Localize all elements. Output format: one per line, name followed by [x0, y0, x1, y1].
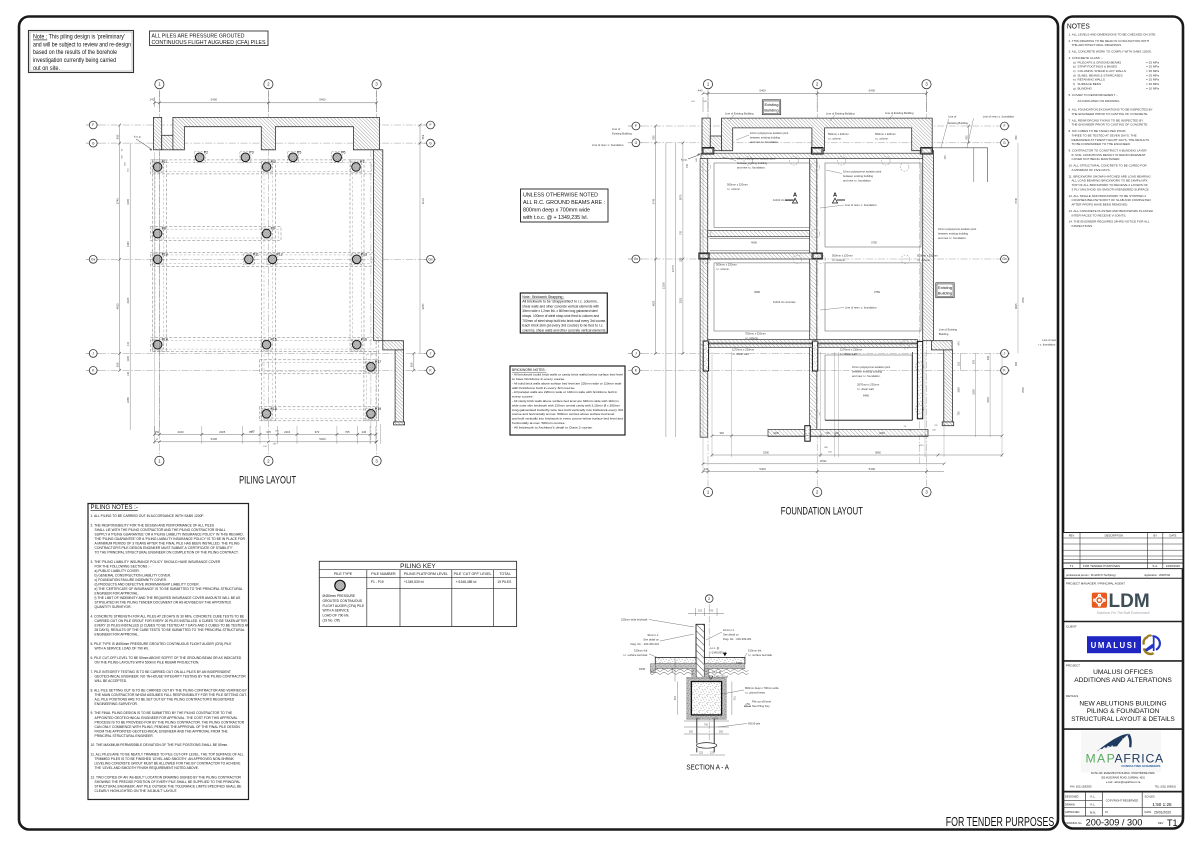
svg-text:500mm x 220mm: 500mm x 220mm	[828, 132, 850, 136]
svg-text:F: F	[635, 124, 637, 128]
svg-text:shear walls and other concrete: shear walls and other concrete vertical …	[522, 304, 599, 308]
svg-text:6. PILE CUT-OFF LEVEL TO BE 50: 6. PILE CUT-OFF LEVEL TO BE 50mm ABOVE S…	[91, 656, 242, 660]
svg-text:J: J	[430, 352, 432, 356]
svg-text:SUITE 108, ESSENHIGH BUILDING,: SUITE 108, ESSENHIGH BUILDING, STRATHMOR…	[1091, 772, 1156, 775]
svg-text:and will be subject to review: and will be subject to review and re-des…	[33, 41, 131, 48]
svg-text:2590: 2590	[972, 389, 975, 395]
svg-text:1170mm x 220mm: 1170mm x 220mm	[732, 348, 755, 352]
svg-text:24/06/2020: 24/06/2020	[1166, 564, 1180, 568]
svg-text:DPM: DPM	[639, 667, 646, 671]
svg-text:800mm deep x 700mm wide: 800mm deep x 700mm wide	[745, 686, 779, 690]
svg-text:and new r.c. foundation.: and new r.c. foundation.	[852, 374, 881, 378]
svg-text:FLIGHT AUGER (CFA) PILE: FLIGHT AUGER (CFA) PILE	[323, 604, 366, 608]
svg-text:3. ALL CONCRETE WORK TO COMPLY: 3. ALL CONCRETE WORK TO COMPLY WITH SABS…	[1069, 50, 1153, 54]
svg-text:r.c. column.: r.c. column.	[828, 137, 842, 141]
svg-text:2530: 2530	[987, 397, 990, 403]
svg-text:G: G	[92, 141, 95, 145]
svg-text:1105: 1105	[126, 355, 130, 361]
svg-text:TEL: (031) 3090631: TEL: (031) 3090631	[1155, 786, 1177, 789]
svg-text:BY: BY	[1153, 533, 1157, 537]
svg-text:LEVELING CONCRETE GROUT MUST B: LEVELING CONCRETE GROUT MUST BE ALLOWED …	[95, 762, 242, 766]
svg-text:GROUTED CONTINUOUS: GROUTED CONTINUOUS	[323, 599, 363, 603]
svg-text:between existing building: between existing building	[938, 232, 969, 236]
svg-text:225mm wide brickwall.: 225mm wide brickwall.	[621, 618, 648, 622]
svg-text:DESCRIPTION: DESCRIPTION	[1105, 533, 1123, 537]
svg-text:130: 130	[709, 609, 714, 613]
svg-text:30mm wide x 1,2mm thk. x 800mm: 30mm wide x 1,2mm thk. x 800mm long galv…	[522, 309, 598, 313]
svg-text:course and horizontally at max: course and horizontally at max. 500mm ce…	[512, 412, 615, 416]
svg-text:975: 975	[266, 430, 271, 434]
svg-text:830: 830	[115, 362, 119, 367]
svg-text:SHOWING THE PRECISE POSITION O: SHOWING THE PRECISE POSITION OF EVERY PI…	[95, 780, 241, 784]
svg-text:- All brickwork (solid brick w: - All brickwork (solid brick walls or ca…	[512, 373, 623, 377]
svg-text:700: 700	[680, 230, 683, 235]
svg-text:10770: 10770	[672, 264, 675, 272]
svg-text:P15: P15	[271, 338, 277, 342]
svg-text:FOR TENDER PURPOSES: FOR TENDER PURPOSES	[1083, 564, 1120, 568]
svg-text:investigation currently being: investigation currently being carried	[33, 57, 116, 64]
svg-text:FOR THE FOLLOWING SECTIONS :-: FOR THE FOLLOWING SECTIONS :-	[95, 564, 151, 568]
svg-text:AFTER PROPS HAVE BEEN REMOVED.: AFTER PROPS HAVE BEEN REMOVED.	[1072, 203, 1129, 207]
svg-text:2025: 2025	[219, 430, 225, 434]
svg-text:INSPECTIONS.: INSPECTIONS.	[1072, 224, 1094, 228]
svg-text:10mm polystyrene isolation joi: 10mm polystyrene isolation joint	[852, 365, 890, 369]
svg-text:P5: P5	[297, 150, 301, 154]
svg-text:P8: P8	[162, 227, 166, 231]
svg-text:LDM: LDM	[1109, 591, 1150, 612]
svg-text:1880: 1880	[957, 387, 960, 393]
svg-text:Line of: Line of	[612, 127, 620, 131]
svg-text:1. ALL LEVELS AND DIMENSIONS T: 1. ALL LEVELS AND DIMENSIONS TO BE CHECK…	[1069, 32, 1157, 36]
svg-text:THE ENGINEER PRIOR TO CASTING: THE ENGINEER PRIOR TO CASTING OF CONCRET…	[1072, 112, 1149, 116]
svg-text:750: 750	[733, 696, 737, 701]
svg-text:5400: 5400	[211, 437, 218, 441]
svg-text:DATE: DATE	[1145, 810, 1152, 814]
svg-text:P7: P7	[360, 160, 364, 164]
svg-text:500mm x 220mm: 500mm x 220mm	[727, 183, 749, 187]
svg-text:440: 440	[671, 667, 675, 672]
svg-text:K.L.: K.L.	[1090, 795, 1096, 799]
svg-text:5745: 5745	[421, 198, 425, 204]
svg-text:PILING & FOUNDATION: PILING & FOUNDATION	[1087, 708, 1160, 715]
svg-text:800: 800	[673, 695, 677, 700]
svg-text:r.c. foundation.: r.c. foundation.	[1038, 343, 1056, 347]
svg-text:700: 700	[704, 724, 709, 727]
svg-text:TO BE FORWARDED TO THE ENGINEE: TO BE FORWARDED TO THE ENGINEER.	[1072, 142, 1131, 146]
svg-text:1:50 1:25: 1:50 1:25	[1152, 802, 1172, 807]
svg-text:g): g)	[1073, 86, 1076, 90]
svg-text:5400: 5400	[869, 88, 876, 92]
svg-text:450: 450	[696, 718, 701, 721]
svg-text:700mm of steel strap built int: 700mm of steel strap built into brick wa…	[522, 319, 606, 323]
svg-text:DETAILS: DETAILS	[1066, 694, 1078, 698]
svg-text:f) THE LIMIT OF INDEMNITY AND: f) THE LIMIT OF INDEMNITY AND THE REQUIR…	[95, 596, 242, 600]
svg-text:F: F	[92, 123, 94, 127]
svg-text:5400: 5400	[869, 467, 876, 471]
svg-text:ENGINEER FOR APPROVAL.: ENGINEER FOR APPROVAL.	[95, 633, 139, 637]
svg-text:Line of new: Line of new	[1042, 338, 1056, 342]
svg-text:CONTRACTOR'S PILE DESIGN ENGIN: CONTRACTOR'S PILE DESIGN ENGINEER MUST S…	[95, 546, 234, 550]
svg-text:2670mm x 220mm: 2670mm x 220mm	[857, 383, 880, 387]
svg-text:2265: 2265	[126, 397, 130, 403]
svg-text:Existing: Existing	[764, 102, 778, 107]
svg-text:P6: P6	[341, 150, 345, 154]
svg-text:t.o.c. @: t.o.c. @	[710, 646, 720, 650]
svg-text:- All solid brick walls above: - All solid brick walls above surface be…	[512, 381, 622, 385]
svg-text:P17: P17	[375, 360, 381, 364]
svg-text:700mm x 220mm: 700mm x 220mm	[745, 332, 767, 336]
svg-text:APPOINTED GEOTECHNICAL ENGINEE: APPOINTED GEOTECHNICAL ENGINEER FOR APPR…	[95, 716, 238, 720]
svg-text:150mm thk.: 150mm thk.	[748, 649, 762, 653]
svg-text:4690: 4690	[751, 241, 757, 245]
svg-text:780: 780	[680, 257, 683, 262]
svg-text:Building: Building	[939, 332, 949, 336]
svg-text:Each brick skin (at every 3rd: Each brick skin (at every 3rd course) to…	[522, 324, 603, 328]
svg-text:4625: 4625	[421, 303, 425, 309]
svg-text:registration : 20067011: registration : 20067011	[1144, 573, 1171, 577]
svg-text:960: 960	[720, 431, 725, 435]
svg-text:CONSULTING ENGINEERS: CONSULTING ENGINEERS	[1121, 764, 1160, 768]
svg-text:Pile cut-off level.: Pile cut-off level.	[752, 700, 772, 704]
svg-text:+/1348,485 lvl: +/1348,485 lvl	[456, 580, 477, 584]
svg-text:P9: P9	[271, 227, 275, 231]
svg-text:STRUCTURAL ENGINEER. ANY PILE: STRUCTURAL ENGINEER. ANY PILE OUTSIDE TH…	[95, 785, 243, 789]
svg-text:305 MUSGRAVE ROAD, DURBAN, 400: 305 MUSGRAVE ROAD, DURBAN, 4001	[1101, 777, 1145, 780]
svg-text:G: G	[429, 141, 432, 145]
svg-text:150mm thk.: 150mm thk.	[634, 649, 648, 653]
svg-text:Line of Existing Building: Line of Existing Building	[826, 112, 855, 116]
svg-text:S.A.: S.A.	[1152, 564, 1158, 568]
svg-text:Line of Existing Building: Line of Existing Building	[725, 112, 754, 116]
svg-text:ENGINEER FOR APPROVAL.: ENGINEER FOR APPROVAL.	[95, 592, 139, 596]
svg-text:3. THE 'PILING LIABILITY INSUR: 3. THE 'PILING LIABILITY INSURANCE POLIC…	[91, 560, 221, 564]
svg-text:DRAWING No.: DRAWING No.	[1065, 821, 1082, 825]
svg-text:r.c. shear wall.: r.c. shear wall.	[732, 352, 749, 356]
svg-text:to have brickforce in every co: to have brickforce in every course.	[512, 377, 565, 381]
svg-text:870: 870	[972, 359, 975, 364]
svg-text:830: 830	[652, 135, 655, 140]
svg-text:SHALL LIE WITH THE PILING CONT: SHALL LIE WITH THE PILING CONTRACTOR AND…	[95, 528, 226, 532]
svg-text:BLINDING: BLINDING	[1078, 86, 1093, 90]
svg-text:10mm polystyrene isolation joi: 10mm polystyrene isolation joint	[843, 170, 881, 174]
svg-text:ON THE PILING LAYOUTS WITH 500: ON THE PILING LAYOUTS WITH 500mm PILE RE…	[95, 660, 200, 664]
svg-text:830: 830	[1015, 361, 1018, 366]
svg-text:Solutions For The Built Enviro: Solutions For The Built Environment	[1097, 611, 1151, 615]
svg-text:Note : Brickwork Strapping :: Note : Brickwork Strapping :	[522, 295, 564, 299]
svg-text:DESIGNED: DESIGNED	[1065, 794, 1079, 798]
svg-text:5390: 5390	[763, 450, 769, 454]
svg-text:+1349,235 lvl.: +1349,235 lvl.	[712, 675, 729, 679]
svg-text:P14: P14	[162, 338, 168, 342]
svg-text:225: 225	[710, 752, 715, 755]
svg-text:THE ARCHITECTURAL DRAWINGS.: THE ARCHITECTURAL DRAWINGS.	[1072, 43, 1123, 47]
svg-text:CARRIED OUT ON PILE GROUT FOR: CARRIED OUT ON PILE GROUT FOR EVERY 20 P…	[95, 619, 248, 623]
svg-text:PRINCIPAL STRUCTURAL ENGINEER.: PRINCIPAL STRUCTURAL ENGINEER.	[95, 734, 154, 738]
svg-text:between existing building: between existing building	[843, 174, 874, 178]
svg-text:FOR TENDER PURPOSES: FOR TENDER PURPOSES	[946, 814, 1055, 829]
svg-text:1360: 1360	[126, 241, 130, 247]
svg-text:FAX: (031) 3092929: FAX: (031) 3092929	[1070, 786, 1092, 789]
svg-text:11010 c/s concrete: 11010 c/s concrete	[773, 300, 796, 304]
svg-text:415: 415	[127, 341, 130, 346]
svg-text:A MINIMUM PERIOD OF 3 YEARS AF: A MINIMUM PERIOD OF 3 YEARS AFTER THE FI…	[95, 541, 241, 545]
svg-text:4625: 4625	[652, 300, 655, 306]
svg-text:4025: 4025	[126, 297, 130, 303]
svg-text:between existing building: between existing building	[737, 161, 768, 165]
svg-text:200-309 / 300: 200-309 / 300	[1086, 818, 1143, 828]
svg-text:APPROVED: APPROVED	[1065, 810, 1080, 814]
svg-text:Existing Building: Existing Building	[948, 121, 968, 125]
svg-text:10mm polystyrene isolation joi: 10mm polystyrene isolation joint	[938, 227, 976, 231]
svg-text:UNLESS OTHERWISE NOTED: UNLESS OTHERWISE NOTED	[523, 193, 598, 199]
svg-text:EVERY 10 PILES INSTALLED (3 CU: EVERY 10 PILES INSTALLED (3 CUBES TO BE …	[95, 624, 249, 628]
svg-text:7. PILE INTEGRITY TESTING IS T: 7. PILE INTEGRITY TESTING IS TO BE CARRI…	[91, 670, 231, 674]
svg-text:3525: 3525	[680, 297, 683, 303]
svg-text:240: 240	[362, 430, 367, 434]
svg-text:professional person : M.NAIR P: professional person : M.NAIR Pr.Tech(Eng…	[1066, 573, 1116, 577]
svg-text:29/01/2020: 29/01/2020	[1154, 811, 1171, 815]
svg-text:k.o.p.: k.o.p.	[681, 158, 688, 162]
svg-text:DPM: DPM	[736, 661, 743, 665]
svg-text:2100: 2100	[178, 430, 184, 434]
svg-text:10mm polystyrene isolation joi: 10mm polystyrene isolation joint	[737, 157, 775, 161]
svg-text:830: 830	[115, 134, 119, 139]
svg-text:Existing Building: Existing Building	[612, 132, 632, 136]
svg-text:FROM THE APPOINTED GEOTECHNICA: FROM THE APPOINTED GEOTECHNICAL ENGINEER…	[95, 729, 229, 733]
svg-text:830: 830	[410, 362, 414, 367]
svg-text:DATE: DATE	[1169, 533, 1176, 537]
svg-text:K.L.: K.L.	[1090, 803, 1096, 807]
svg-text:3750: 3750	[874, 290, 880, 294]
svg-text:6460: 6460	[863, 393, 869, 397]
svg-text:NEW ABLUTIONS BUILDING: NEW ABLUTIONS BUILDING	[1079, 701, 1166, 708]
svg-text:horizontally at max. 500mm cen: horizontally at max. 500mm centres.	[512, 421, 565, 425]
svg-text:= 10 MPa: = 10 MPa	[1146, 86, 1159, 90]
svg-text:700: 700	[686, 163, 689, 168]
svg-text:All brickwork to be 'strapped/: All brickwork to be 'strapped/tied' to r…	[522, 300, 597, 304]
svg-text:P2: P2	[204, 150, 208, 154]
svg-text:5745: 5745	[1015, 198, 1018, 204]
svg-text:225: 225	[699, 752, 704, 755]
svg-text:G: G	[635, 141, 638, 145]
svg-text:830: 830	[965, 135, 968, 140]
svg-text:Existing: Existing	[938, 285, 952, 290]
svg-text:830: 830	[421, 135, 425, 140]
svg-text:PROJECT: PROJECT	[1066, 664, 1080, 668]
svg-text:Gx: Gx	[1002, 257, 1007, 261]
svg-text:G: G	[1003, 141, 1006, 145]
svg-text:ADDITIONS AND ALTERATIONS: ADDITIONS AND ALTERATIONS	[1074, 677, 1172, 684]
svg-text:5860: 5860	[875, 450, 881, 454]
svg-text:28 DAYS). RESULTS OF THE CUBE: 28 DAYS). RESULTS OF THE CUBE TESTS TO B…	[95, 628, 245, 632]
svg-text:350: 350	[689, 731, 694, 734]
svg-text:700: 700	[957, 411, 960, 416]
svg-text:5745: 5745	[652, 198, 655, 204]
svg-text:DRAWN: DRAWN	[1065, 802, 1075, 806]
svg-text:700: 700	[825, 431, 830, 435]
svg-text:Line of Existing Building: Line of Existing Building	[885, 111, 914, 115]
svg-text:5400: 5400	[319, 437, 326, 441]
svg-text:Note : This piling design is ': Note : This piling design is 'preliminar…	[33, 34, 125, 41]
svg-text:based on the results of the bo: based on the results of the borehole	[33, 49, 118, 56]
svg-text:2. THE RESPONSIBILITY FOR THE: 2. THE RESPONSIBILITY FOR THE DESIGN AND…	[91, 523, 215, 527]
svg-text:4400: 4400	[773, 431, 779, 435]
svg-text:500mm x 220mm: 500mm x 220mm	[875, 132, 897, 136]
svg-text:ALL PILES ARE PRESSURE GROUTED: ALL PILES ARE PRESSURE GROUTED	[152, 34, 245, 40]
svg-text:wide outer skin brickwork with: wide outer skin brickwork with 120mm cen…	[512, 403, 620, 407]
svg-text:130: 130	[127, 371, 130, 376]
svg-text:3670: 3670	[680, 194, 683, 200]
svg-text:830: 830	[1015, 135, 1018, 140]
svg-text:F: F	[1003, 124, 1005, 128]
svg-text:CLIENT: CLIENT	[1066, 625, 1077, 629]
svg-text:with brickforce built in every: with brickforce built in every 3rd cours…	[512, 386, 576, 390]
svg-text:See detail on: See detail on	[643, 638, 659, 642]
svg-text:19 PILES: 19 PILES	[497, 580, 512, 584]
svg-text:4260: 4260	[879, 431, 885, 435]
svg-text:and new r.c. foundation.: and new r.c. foundation.	[938, 236, 967, 240]
svg-text:BRICKWORK NOTES :: BRICKWORK NOTES :	[512, 368, 547, 372]
svg-text:r.c. column.: r.c. column.	[727, 187, 741, 191]
svg-text:THE MAIN CONTRACTOR WHOM ASSUM: THE MAIN CONTRACTOR WHOM ASSUMES FULL RE…	[95, 693, 247, 697]
svg-text:COPYRIGHT RESERVED: COPYRIGHT RESERVED	[1106, 799, 1139, 803]
svg-text:SECTION A - A: SECTION A - A	[686, 762, 729, 771]
svg-text:and new r.c. foundation.: and new r.c. foundation.	[737, 166, 766, 170]
svg-text:P4: P4	[271, 160, 275, 164]
svg-text:PILING NOTES :-: PILING NOTES :-	[91, 505, 138, 511]
svg-text:PILE TYPE: PILE TYPE	[334, 572, 353, 576]
svg-text:PROJECT MANAGER / PRINCIPAL AG: PROJECT MANAGER / PRINCIPAL AGENT	[1066, 582, 1125, 586]
svg-text:FOUNDATION LAYOUT: FOUNDATION LAYOUT	[781, 506, 863, 518]
svg-text:straps. 100mm of steel strap s: straps. 100mm of steel strap shot fired …	[522, 314, 599, 318]
svg-text:640: 640	[957, 341, 960, 346]
svg-text:(19 No. Off): (19 No. Off)	[323, 619, 340, 623]
svg-text:r.c. ground beam.: r.c. ground beam.	[745, 691, 766, 695]
svg-text:A MINIMUM OF FIVE DAYS.: A MINIMUM OF FIVE DAYS.	[1072, 168, 1111, 172]
svg-text:P13: P13	[361, 252, 367, 256]
svg-text:between existing building: between existing building	[852, 370, 883, 374]
svg-text:and built vertically into bric: and built vertically into brickwork in e…	[512, 417, 623, 421]
svg-text:5400: 5400	[759, 467, 766, 471]
svg-text:PROCESS IS TO BE PROVIDED FOR: PROCESS IS TO BE PROVIDED FOR BY THE PIL…	[95, 720, 245, 724]
svg-text:1170mm x 220mm: 1170mm x 220mm	[840, 348, 863, 352]
svg-text:t.o.c. @: t.o.c. @	[712, 670, 722, 674]
svg-text:P3: P3	[249, 150, 253, 154]
svg-text:J: J	[1004, 352, 1006, 356]
svg-text:705: 705	[345, 430, 350, 434]
svg-text:UMALUSI OFFICES: UMALUSI OFFICES	[1093, 669, 1153, 676]
svg-text:b) GENERAL CONSTRUCTION LIABIL: b) GENERAL CONSTRUCTION LIABILITY COVER.	[95, 573, 171, 577]
svg-text:CAN ONLY COMMENCE WITH PILING,: CAN ONLY COMMENCE WITH PILING, PENDING T…	[95, 725, 241, 729]
svg-text:with t.o.c. @ + 1349,235 lvl.: with t.o.c. @ + 1349,235 lvl.	[522, 215, 588, 221]
svg-text:P11: P11	[253, 252, 259, 256]
svg-text:5. PILE TYPE IS Ø450mm PRESSUR: 5. PILE TYPE IS Ø450mm PRESSURE GROUTED …	[91, 642, 233, 646]
svg-text:r.c. column.: r.c. column.	[716, 267, 730, 271]
svg-text:and new r.c. foundation.: and new r.c. foundation.	[843, 179, 872, 183]
svg-text:220: 220	[698, 609, 703, 613]
svg-text:e-mail : admin@mapafrica.co.za: e-mail : admin@mapafrica.co.za	[1106, 781, 1141, 784]
svg-text:Dwg. No. : 200-309-301: Dwg. No. : 200-309-301	[630, 642, 659, 646]
svg-text:M.N.: M.N.	[1090, 810, 1096, 814]
svg-text:- All brickwork to Architect's: - All brickwork to Architect's detail in…	[512, 425, 593, 429]
svg-text:THE 'LEVEL AND SMOOTH' FINISH: THE 'LEVEL AND SMOOTH' FINISH REQUIREMEN…	[95, 766, 199, 770]
svg-text:10mm I.J.: 10mm I.J.	[647, 633, 659, 637]
svg-text:5400: 5400	[759, 88, 766, 92]
svg-text:e) THE 'CERTIFICATE OF INSURAN: e) THE 'CERTIFICATE OF INSURANCE' IS TO …	[95, 587, 243, 591]
svg-text:a) PUBLIC LIABILITY COVER.: a) PUBLIC LIABILITY COVER.	[95, 569, 140, 573]
svg-text:Gx: Gx	[634, 257, 639, 261]
svg-text:P1 - P19: P1 - P19	[371, 580, 384, 584]
svg-text:5400: 5400	[319, 98, 326, 102]
svg-text:800mm deep x 700mm wide: 800mm deep x 700mm wide	[523, 208, 590, 214]
svg-text:P12: P12	[276, 252, 282, 256]
svg-text:k.o.p.: k.o.p.	[134, 135, 142, 139]
svg-text:4. CONCRETE STRENGTH FOR ALL P: 4. CONCRETE STRENGTH FOR ALL PILES AT 28…	[91, 615, 245, 619]
svg-text:LOAD OF 790 kN.: LOAD OF 790 kN.	[323, 614, 350, 618]
svg-text:3195: 3195	[126, 198, 130, 204]
svg-text:WILL BE ACCEPTED.: WILL BE ACCEPTED.	[95, 679, 128, 683]
svg-text:PL: PL	[1105, 810, 1109, 814]
svg-text:250: 250	[155, 430, 160, 434]
svg-text:2: 2	[708, 597, 710, 601]
svg-text:TRIMMED PILES IS TO BE FINISHE: TRIMMED PILES IS TO BE FINISHED 'LEVEL A…	[95, 757, 235, 761]
svg-text:Dwg. No. : 200-309-301: Dwg. No. : 200-309-301	[723, 637, 752, 641]
svg-text:9. THE FINAL PILING DESIGN IS: 9. THE FINAL PILING DESIGN IS TO BE SUBM…	[91, 711, 233, 715]
svg-text:SCALES: SCALES	[1145, 794, 1156, 798]
svg-text:440: 440	[698, 88, 703, 92]
svg-text:Building: Building	[938, 291, 952, 296]
svg-text:PILING KEY: PILING KEY	[400, 563, 436, 570]
svg-text:3 PLY MALTHOID ON SMOOTH RENDE: 3 PLY MALTHOID ON SMOOTH RENDERED SURFAC…	[1072, 187, 1150, 191]
svg-text:2215: 2215	[284, 430, 290, 434]
svg-text:4625: 4625	[1015, 303, 1018, 309]
svg-text:STRUCTURAL LAYOUT & DETAILS: STRUCTURAL LAYOUT & DETAILS	[1071, 716, 1174, 723]
svg-text:long galvanised butterfly wire: long galvanised butterfly wire ties buil…	[512, 408, 623, 412]
svg-text:GEOTECHNICAL ENGINEER. NO 'IN-: GEOTECHNICAL ENGINEER. NO 'IN-HOUSE' INT…	[95, 674, 247, 678]
svg-text:12. TWO COPIES OF AN 'AS-BUILT: 12. TWO COPIES OF AN 'AS-BUILT' LOCATION…	[91, 776, 242, 780]
svg-text:Ø450mm PRESSURE: Ø450mm PRESSURE	[323, 594, 356, 598]
svg-text:P19: P19	[375, 407, 381, 411]
svg-text:ENGINEERING SURVEYOR.: ENGINEERING SURVEYOR.	[95, 702, 138, 706]
svg-text:PILING LAYOUT: PILING LAYOUT	[239, 475, 296, 487]
svg-text:J: J	[92, 352, 94, 356]
svg-text:970: 970	[315, 430, 320, 434]
svg-text:AS INDICATED ON DRAWING: AS INDICATED ON DRAWING	[1078, 99, 1121, 103]
svg-text:PILE 'CUT OFF' LEVEL: PILE 'CUT OFF' LEVEL	[454, 572, 492, 576]
svg-text:and new r.c. foundation.: and new r.c. foundation.	[750, 140, 779, 144]
svg-text:F: F	[429, 123, 431, 127]
svg-text:Line of new r.c. foundation.: Line of new r.c. foundation.	[592, 143, 624, 147]
svg-text:REV: REV	[1158, 821, 1164, 825]
svg-text:every course.: every course.	[512, 395, 534, 399]
svg-text:CLEARLY HIGHLIGHTED ON THE 'AS: CLEARLY HIGHLIGHTED ON THE 'AS-BUILT' LA…	[95, 789, 178, 793]
svg-text:r.c. surface bed slab.: r.c. surface bed slab.	[748, 653, 773, 657]
svg-text:Line of new r.c. foundation.: Line of new r.c. foundation.	[845, 306, 877, 310]
svg-text:3750: 3750	[871, 241, 877, 245]
svg-text:4625: 4625	[115, 303, 119, 309]
svg-text:See detail on: See detail on	[723, 633, 739, 637]
svg-text:out on site.: out on site.	[33, 65, 60, 72]
svg-text:QUANTITY SURVEYOR.: QUANTITY SURVEYOR.	[95, 605, 132, 609]
svg-text:Gx: Gx	[428, 258, 433, 262]
svg-text:NOTES: NOTES	[1067, 21, 1090, 30]
svg-text:r.c. column.: r.c. column.	[875, 137, 889, 141]
svg-text:10mm I.J.: 10mm I.J.	[723, 628, 735, 632]
svg-text:5745: 5745	[115, 198, 119, 204]
svg-text:440: 440	[704, 467, 709, 471]
svg-text:700: 700	[944, 155, 947, 160]
svg-text:d) PRODUCTS AND DEFECTIVE WORK: d) PRODUCTS AND DEFECTIVE WORKMANSHIP LI…	[95, 583, 200, 587]
